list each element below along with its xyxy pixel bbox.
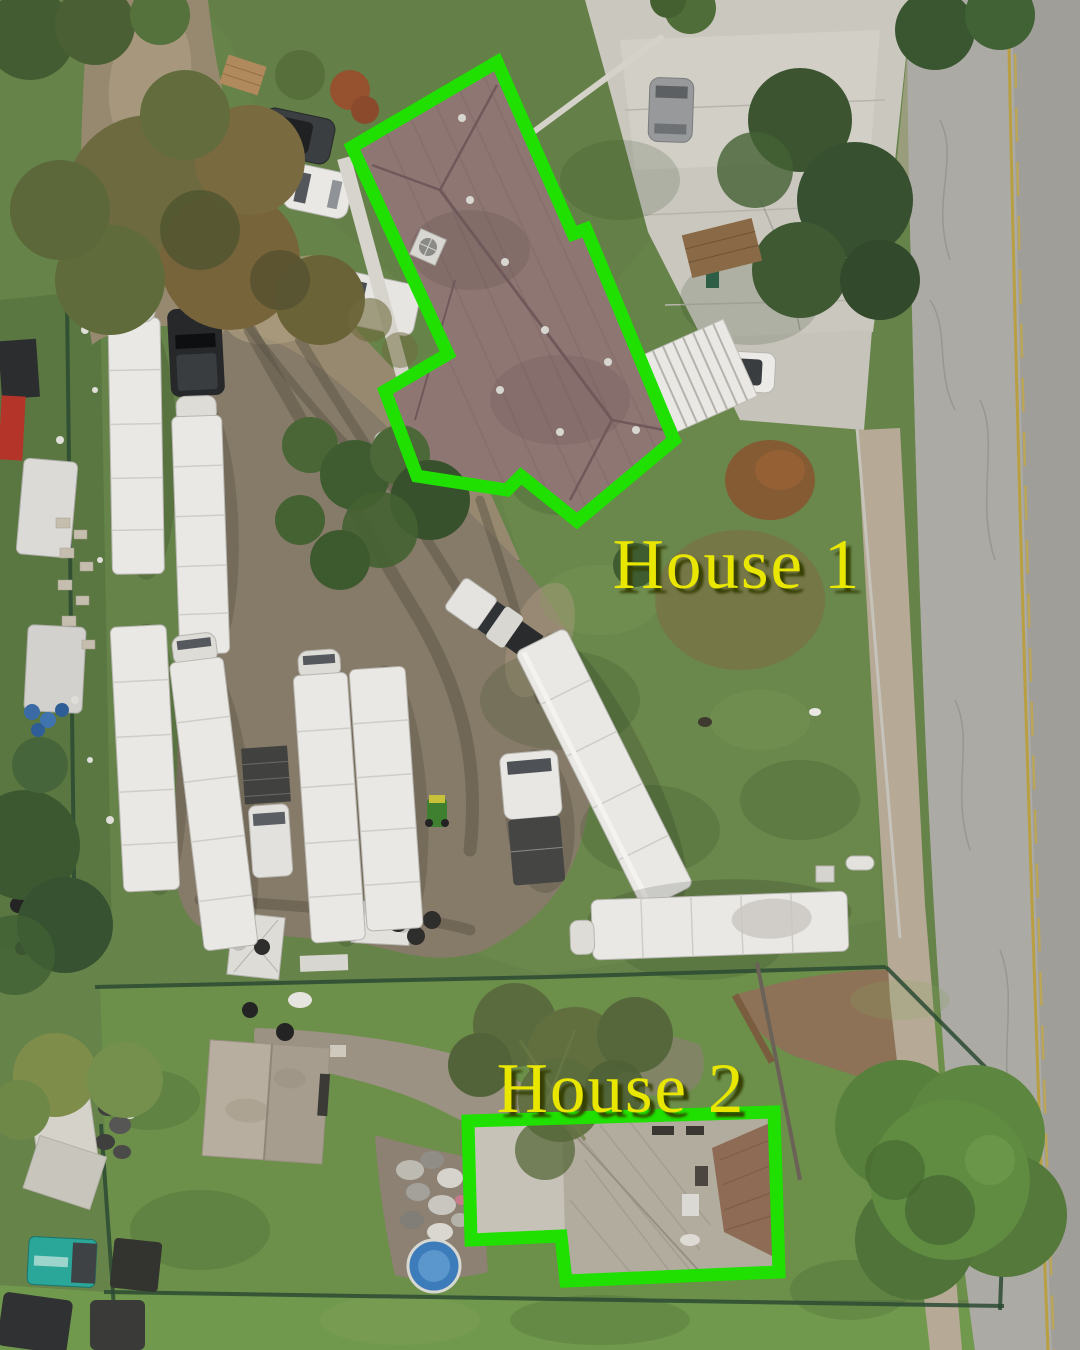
house-1-label: House 1 bbox=[613, 526, 862, 604]
white-container bbox=[16, 458, 78, 558]
lawn-dark-spot bbox=[698, 717, 712, 727]
aerial-photo: House 1 House 2 bbox=[0, 0, 1080, 1350]
propane-tank bbox=[846, 856, 874, 870]
gray-car bbox=[648, 77, 694, 142]
chimney bbox=[695, 1166, 708, 1186]
dark-vehicle bbox=[0, 1291, 73, 1350]
red-truck bbox=[0, 395, 26, 460]
green-tractor bbox=[425, 795, 449, 827]
house-2-label: House 2 bbox=[497, 1050, 746, 1128]
aerial-scene: House 1 House 2 bbox=[0, 0, 1080, 1350]
white-debris bbox=[809, 708, 821, 716]
shed bbox=[202, 1040, 332, 1164]
teal-truck bbox=[27, 1236, 97, 1287]
tree-bottom-right bbox=[835, 1060, 1067, 1300]
